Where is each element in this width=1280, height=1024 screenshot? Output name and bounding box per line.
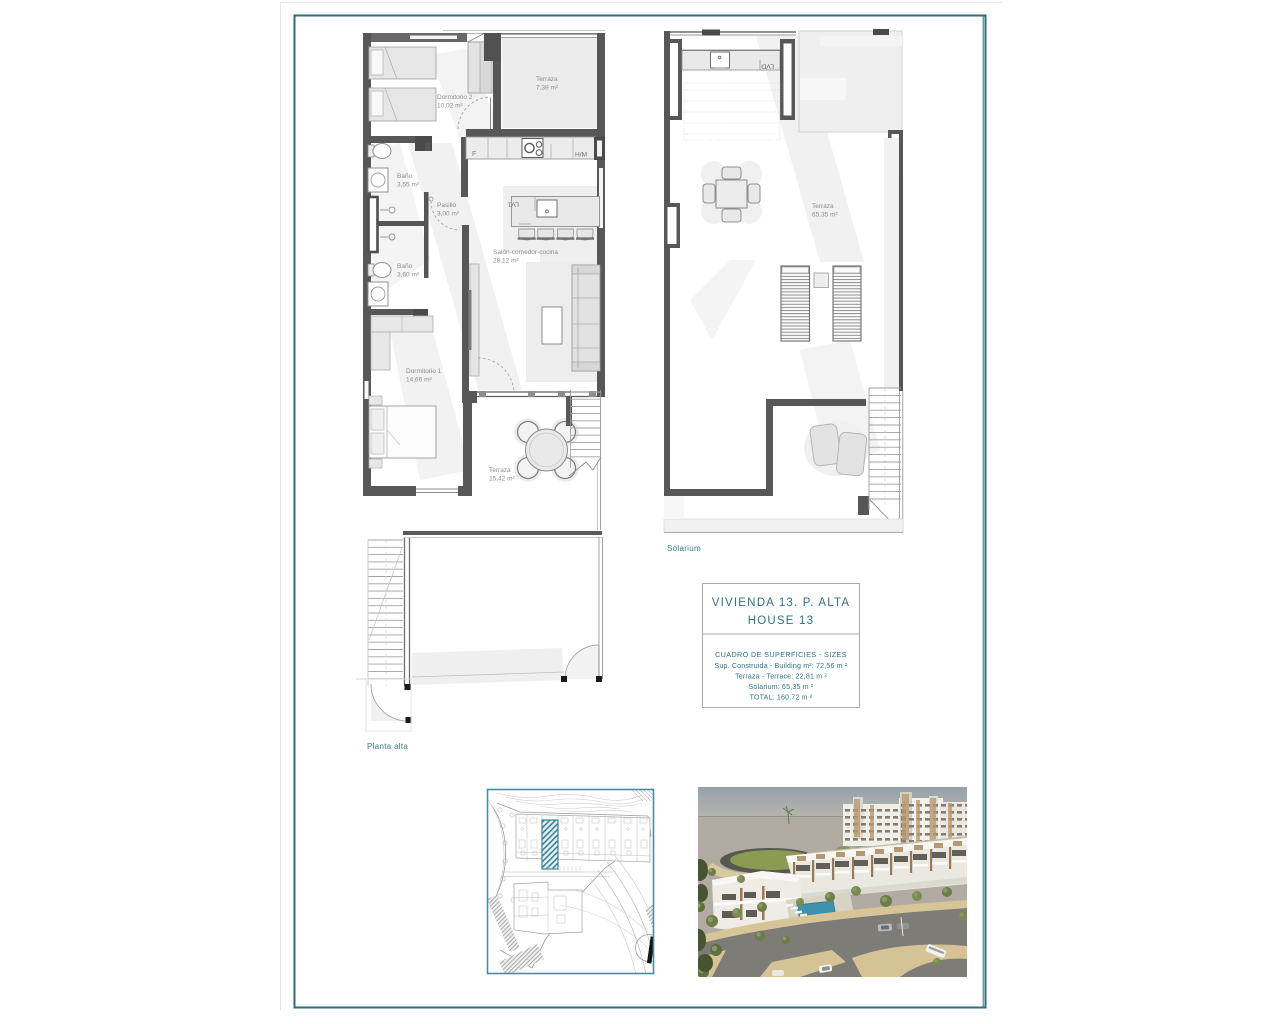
- svg-text:7,39 m²: 7,39 m²: [536, 85, 559, 92]
- svg-text:3,55 m²: 3,55 m²: [397, 182, 420, 189]
- svg-text:Baño: Baño: [397, 173, 413, 180]
- svg-text:Pasillo: Pasillo: [437, 202, 457, 209]
- svg-text:Dormitorio 2: Dormitorio 2: [437, 94, 473, 101]
- svg-text:Planta alta: Planta alta: [367, 742, 408, 751]
- svg-text:15,42 m²: 15,42 m²: [489, 476, 515, 483]
- svg-text:3,60 m²: 3,60 m²: [397, 272, 420, 279]
- svg-text:CUADRO DE SUPERFICIES - SIZES: CUADRO DE SUPERFICIES - SIZES: [715, 650, 847, 659]
- svg-text:LVD: LVD: [761, 63, 774, 70]
- svg-text:HOUSE 13: HOUSE 13: [748, 615, 814, 627]
- svg-text:3,00 m²: 3,00 m²: [437, 211, 460, 218]
- svg-text:Terraza - Terrace: 22,81 m ²: Terraza - Terrace: 22,81 m ²: [735, 674, 827, 681]
- svg-text:28,12 m²: 28,12 m²: [493, 258, 519, 265]
- svg-text:Terraza: Terraza: [489, 467, 511, 474]
- svg-text:H/M: H/M: [575, 152, 587, 159]
- svg-text:Sup. Construida - Building m²: Sup. Construida - Building m²: 72,56 m ²: [715, 663, 848, 670]
- svg-text:Solarium: 65,35 m ²: Solarium: 65,35 m ²: [749, 684, 814, 691]
- svg-text:F: F: [472, 151, 476, 158]
- svg-text:Terraza: Terraza: [812, 203, 834, 210]
- svg-text:65,35 m²: 65,35 m²: [812, 212, 838, 219]
- svg-text:LV1: LV1: [507, 201, 519, 208]
- svg-text:Salón-comedor-cocina: Salón-comedor-cocina: [493, 249, 558, 256]
- svg-text:14,66 m²: 14,66 m²: [406, 377, 432, 384]
- svg-text:Dormitorio 1: Dormitorio 1: [406, 368, 442, 375]
- svg-text:Solarium: Solarium: [667, 544, 701, 553]
- svg-text:Terraza: Terraza: [536, 76, 558, 83]
- svg-text:VIVIENDA 13. P. ALTA: VIVIENDA 13. P. ALTA: [712, 597, 850, 609]
- svg-text:Baño: Baño: [397, 263, 413, 270]
- svg-text:10,02 m²: 10,02 m²: [437, 103, 463, 110]
- svg-text:TOTAL: 160,72 m ²: TOTAL: 160,72 m ²: [750, 695, 813, 702]
